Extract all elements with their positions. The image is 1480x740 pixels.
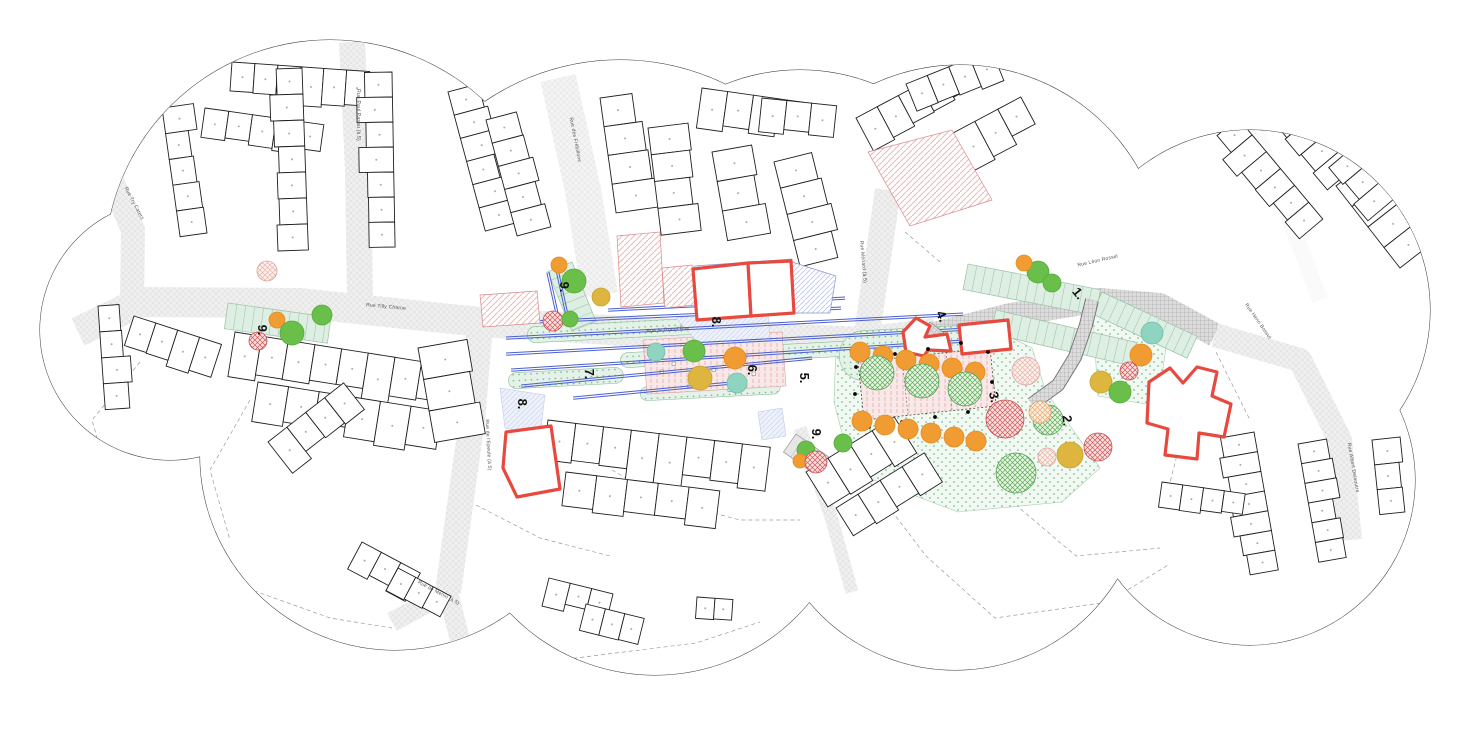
tree-icon <box>898 419 918 439</box>
tree-icon <box>562 311 578 327</box>
bollard <box>853 392 857 396</box>
parcel-number-mark <box>1407 244 1409 246</box>
tree-icon <box>1141 322 1163 344</box>
parcel-number-mark <box>374 109 376 111</box>
bollard <box>986 350 990 354</box>
parcel-number-mark <box>292 236 294 238</box>
tree-icon <box>724 347 746 369</box>
parcel-number-mark <box>1386 450 1388 452</box>
tree-icon <box>727 373 747 393</box>
parcel-number-mark <box>995 132 997 134</box>
tree-icon <box>875 415 895 435</box>
tree-icon <box>834 434 852 452</box>
parcel-number-mark <box>921 92 923 94</box>
zone-label: 7. <box>582 369 597 380</box>
bollard <box>926 347 930 351</box>
parcel-number-mark <box>305 431 307 433</box>
parcel-number-mark <box>1330 549 1332 551</box>
parcel-number-mark <box>599 602 601 604</box>
parcel-number-mark <box>377 84 379 86</box>
tree-icon <box>688 366 712 390</box>
parcel-number-mark <box>669 462 671 464</box>
tree-icon <box>1016 255 1032 271</box>
tree-icon <box>1109 381 1131 403</box>
parcel-number-mark <box>377 378 379 380</box>
parcel-number-mark <box>1303 220 1305 222</box>
parcel-number-mark <box>893 441 895 443</box>
parcel-number-mark <box>1239 464 1241 466</box>
bollard <box>959 341 963 345</box>
furniture-mark <box>672 362 676 366</box>
parcel-number-mark <box>271 357 273 359</box>
parcel-number-mark <box>797 115 799 117</box>
parcel-number-mark <box>855 514 857 516</box>
zone-label: 9. <box>809 429 824 440</box>
tree-icon <box>905 364 939 398</box>
parcel-number-mark <box>465 99 467 101</box>
parcel-number-mark <box>400 583 402 585</box>
parcel-number-mark <box>921 473 923 475</box>
parcel-number-mark <box>877 501 879 503</box>
zone-label: 5. <box>797 373 812 384</box>
parcel-number-mark <box>1190 498 1192 500</box>
tree-icon <box>1029 401 1051 423</box>
parcel-number-mark <box>241 76 243 78</box>
parcel-number-mark <box>671 165 673 167</box>
parcel-number-mark <box>238 125 240 127</box>
parcel-number-mark <box>1170 495 1172 497</box>
parcel-number-mark <box>1306 134 1308 136</box>
parcel-number-mark <box>364 560 366 562</box>
parcel-number-mark <box>1244 155 1246 157</box>
parcel-number-mark <box>1293 117 1295 119</box>
parcel-number-mark <box>204 356 206 358</box>
parcel-number-mark <box>375 159 377 161</box>
parcel-number-mark <box>288 132 290 134</box>
building <box>1273 98 1315 138</box>
tree-icon <box>1084 433 1112 461</box>
parcel-number-mark <box>1387 475 1389 477</box>
parcel-number-mark <box>737 192 739 194</box>
parcel-number-mark <box>617 109 619 111</box>
parcel-number-mark <box>291 158 293 160</box>
parcel-number-mark <box>351 368 353 370</box>
parcel-number-mark <box>286 107 288 109</box>
parcel-number-mark <box>444 358 446 360</box>
parcel-number-mark <box>309 135 311 137</box>
parcel-number-mark <box>379 134 381 136</box>
parcel-number-mark <box>1248 503 1250 505</box>
parcel-number-mark <box>187 195 189 197</box>
parcel-number-mark <box>973 145 975 147</box>
parcel-number-mark <box>986 68 988 70</box>
parcel-number-mark <box>456 421 458 423</box>
tree-icon <box>647 343 665 361</box>
parcel-number-mark <box>1373 200 1375 202</box>
parcel-number-mark <box>214 123 216 125</box>
parcel-number-mark <box>1392 223 1394 225</box>
parcel-number-mark <box>1321 150 1323 152</box>
parcel-number-mark <box>609 495 611 497</box>
tree-icon <box>683 340 705 362</box>
parcel-number-mark <box>1362 181 1364 183</box>
parcel-number-mark <box>711 109 713 111</box>
parcel-number-mark <box>264 78 266 80</box>
parcel-number-mark <box>698 457 700 459</box>
red-outline-building <box>748 261 794 316</box>
parcel-number-mark <box>384 568 386 570</box>
bollard <box>854 365 858 369</box>
tree-icon <box>543 311 563 331</box>
tree-icon <box>1090 371 1112 393</box>
tree-icon <box>1120 362 1138 380</box>
zone-label: 2. <box>1060 415 1076 427</box>
parcel-number-mark <box>591 619 593 621</box>
parcel-number-mark <box>671 500 673 502</box>
parcel-number-mark <box>289 80 291 82</box>
building <box>1248 64 1286 101</box>
parcel-number-mark <box>772 115 774 117</box>
parcel-number-mark <box>895 115 897 117</box>
parcel-number-mark <box>1390 500 1392 502</box>
parcel-number-mark <box>269 403 271 405</box>
parcel-number-mark <box>418 592 420 594</box>
tree-icon <box>921 423 941 443</box>
parcel-number-mark <box>1327 529 1329 531</box>
parcel-number-mark <box>522 196 524 198</box>
parcel-number-mark <box>291 184 293 186</box>
parcel-number-mark <box>361 418 363 420</box>
parcel-number-mark <box>811 221 813 223</box>
zone-label: 6. <box>745 365 760 376</box>
parcel-number-mark <box>289 449 291 451</box>
parcel-number-mark <box>1321 510 1323 512</box>
parcel-number-mark <box>815 248 817 250</box>
parcel-number-mark <box>1256 542 1258 544</box>
parcel-number-mark <box>481 144 483 146</box>
parcel-number-mark <box>380 184 382 186</box>
parcel-number-mark <box>298 361 300 363</box>
parcel-number-mark <box>116 369 118 371</box>
bollard <box>893 352 897 356</box>
parcel-number-mark <box>745 221 747 223</box>
parcel-number-mark <box>139 333 141 335</box>
parcel-number-mark <box>1250 523 1252 525</box>
parcel-number-mark <box>1232 502 1234 504</box>
parcel-number-mark <box>182 351 184 353</box>
building <box>1255 81 1300 124</box>
parcel-number-mark <box>498 214 500 216</box>
parcel-number-mark <box>422 427 424 429</box>
tree-icon <box>996 453 1036 493</box>
parcel-number-mark <box>473 121 475 123</box>
parcel-number-mark <box>640 496 642 498</box>
parcel-number-mark <box>530 219 532 221</box>
site-plan-page: Rue Try CatersRue Paul Pasau (à 5)Rue de… <box>0 0 1480 740</box>
parcel-number-mark <box>108 317 110 319</box>
parcel-number-mark <box>803 195 805 197</box>
parcel-number-mark <box>381 234 383 236</box>
parcel-number-mark <box>870 453 872 455</box>
zone-label: 9. <box>557 282 572 293</box>
parcel-number-mark <box>1274 187 1276 189</box>
parcel-number-mark <box>701 507 703 509</box>
hatched-parcel <box>480 291 540 327</box>
hatched-parcel <box>662 265 695 308</box>
parcel-number-mark <box>641 457 643 459</box>
parcel-number-mark <box>669 138 671 140</box>
parcel-number-mark <box>1266 81 1268 83</box>
parcel-number-mark <box>300 406 302 408</box>
tree-icon <box>944 427 964 447</box>
parcel-number-mark <box>629 166 631 168</box>
zone-label: 8. <box>515 399 530 410</box>
tree-icon <box>280 321 304 345</box>
tree-icon <box>1012 357 1040 385</box>
bollard <box>990 380 994 384</box>
parcel-number-mark <box>310 86 312 88</box>
tree-icon <box>852 411 872 431</box>
parcel-number-mark <box>558 441 560 443</box>
parcel-number-mark <box>1211 499 1213 501</box>
parcel-number-mark <box>1262 562 1264 564</box>
parcel-number-mark <box>586 443 588 445</box>
tree-icon <box>860 356 894 390</box>
wedge <box>758 408 786 440</box>
parcel-number-mark <box>494 190 496 192</box>
parcel-number-mark <box>482 168 484 170</box>
parcel-number-mark <box>510 150 512 152</box>
zone-label: 9. <box>255 325 270 336</box>
site-plan-canvas: Rue Try CatersRue Paul Pasau (à 5)Rue de… <box>0 0 1480 740</box>
parcel-number-mark <box>333 86 335 88</box>
parcel-number-mark <box>722 608 724 610</box>
tree-icon <box>592 288 610 306</box>
parcel-number-mark <box>704 607 706 609</box>
tree-icon <box>1057 442 1083 468</box>
parcel-number-mark <box>244 355 246 357</box>
parcel-number-mark <box>404 378 406 380</box>
parcel-number-mark <box>822 119 824 121</box>
parcel-number-mark <box>849 468 851 470</box>
hatched-parcel <box>617 232 664 307</box>
parcel-number-mark <box>178 118 180 120</box>
parcel-number-mark <box>942 84 944 86</box>
parcel-number-mark <box>795 169 797 171</box>
parcel-number-mark <box>898 486 900 488</box>
red-outline-building <box>503 426 560 497</box>
parcel-number-mark <box>391 425 393 427</box>
parcel-number-mark <box>178 144 180 146</box>
parcel-number-mark <box>1346 165 1348 167</box>
parcel-number-mark <box>344 403 346 405</box>
parcel-number-mark <box>436 601 438 603</box>
tree-icon <box>805 451 827 473</box>
parcel-number-mark <box>733 162 735 164</box>
parcel-number-mark <box>737 110 739 112</box>
parcel-number-mark <box>1277 101 1279 103</box>
zone-label: 8. <box>709 317 724 328</box>
parcel-number-mark <box>518 172 520 174</box>
parcel-number-mark <box>448 390 450 392</box>
parcel-number-mark <box>725 461 727 463</box>
parcel-number-mark <box>116 395 118 397</box>
red-outline-building <box>959 320 1011 354</box>
parcel-number-mark <box>111 343 113 345</box>
parcel-number-mark <box>324 417 326 419</box>
red-outline-building <box>693 263 751 320</box>
parcel-number-mark <box>679 218 681 220</box>
parcel-number-mark <box>635 194 637 196</box>
parcel-number-mark <box>1313 450 1315 452</box>
parcel-number-mark <box>1245 483 1247 485</box>
parcel-number-mark <box>1015 116 1017 118</box>
tree-icon <box>551 257 567 273</box>
parcel-number-mark <box>1238 444 1240 446</box>
parcel-number-mark <box>673 192 675 194</box>
parcel-number-mark <box>555 594 557 596</box>
parcel-number-mark <box>827 482 829 484</box>
parcel-number-mark <box>1260 169 1262 171</box>
parcel-number-mark <box>182 170 184 172</box>
tree-icon <box>257 261 277 281</box>
parcel-number-mark <box>577 595 579 597</box>
tree-icon <box>948 372 982 406</box>
parcel-number-mark <box>292 210 294 212</box>
parcel-number-mark <box>325 364 327 366</box>
parcel-number-mark <box>753 467 755 469</box>
tree-icon <box>1043 274 1061 292</box>
parcel-number-mark <box>578 490 580 492</box>
tree-icon <box>986 400 1024 438</box>
parcel-number-mark <box>381 209 383 211</box>
bollard <box>966 410 970 414</box>
parcel-number-mark <box>874 128 876 130</box>
parcel-number-mark <box>1290 202 1292 204</box>
parcel-number-mark <box>964 76 966 78</box>
street-label: Rue Paul Pasau (à 5) <box>355 89 361 141</box>
parcel-number-mark <box>630 628 632 630</box>
parcel-number-mark <box>614 447 616 449</box>
parcel-number-mark <box>611 623 613 625</box>
parcel-number-mark <box>161 341 163 343</box>
parcel-number-mark <box>624 137 626 139</box>
tree-icon <box>1038 448 1056 466</box>
bollard <box>933 415 937 419</box>
parcel-number-mark <box>1318 470 1320 472</box>
parcel-number-mark <box>1321 489 1323 491</box>
tree-icon <box>312 305 332 325</box>
parcel-number-mark <box>191 221 193 223</box>
parcel-number-mark <box>261 131 263 133</box>
tree-icon <box>966 431 986 451</box>
parcel-number-mark <box>1234 134 1236 136</box>
parcel-number-mark <box>503 127 505 129</box>
